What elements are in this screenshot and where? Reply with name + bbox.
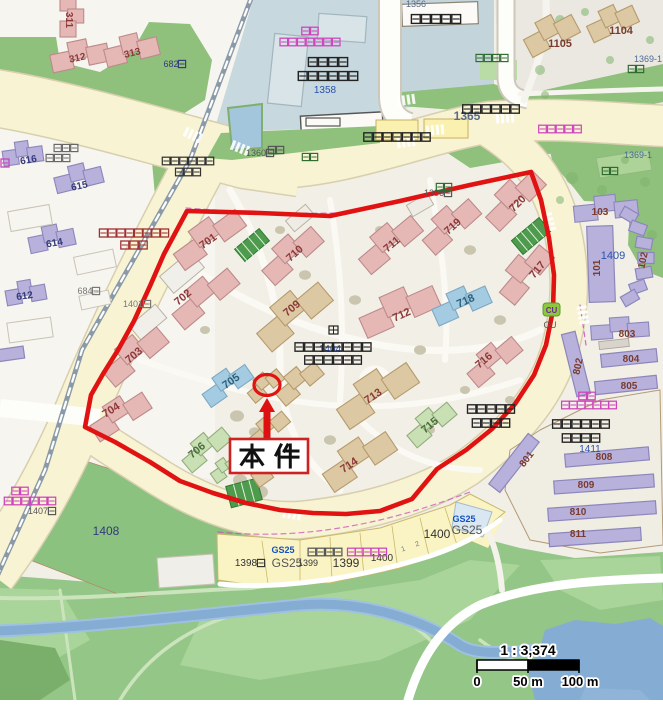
svg-text:682: 682: [163, 59, 178, 69]
svg-text:1399: 1399: [298, 558, 318, 568]
svg-text:100 m: 100 m: [562, 674, 599, 689]
svg-text:GS25: GS25: [271, 545, 294, 555]
svg-text:1400: 1400: [371, 553, 394, 564]
svg-text:0: 0: [473, 674, 480, 689]
svg-text:1369-1: 1369-1: [634, 54, 662, 64]
svg-text:103: 103: [592, 207, 609, 218]
svg-text:1409: 1409: [601, 250, 625, 262]
svg-text:1360: 1360: [246, 148, 266, 158]
svg-text:1358: 1358: [314, 85, 337, 96]
svg-text:1365: 1365: [454, 109, 481, 123]
svg-text:805: 805: [621, 381, 638, 392]
svg-text:1400: 1400: [424, 527, 451, 541]
svg-text:1401: 1401: [123, 299, 143, 309]
svg-text:1407: 1407: [28, 506, 48, 516]
svg-text:1399: 1399: [333, 556, 360, 570]
svg-text:809: 809: [578, 480, 595, 491]
svg-text:1369-1: 1369-1: [624, 150, 652, 160]
svg-text:CU: CU: [546, 306, 558, 315]
svg-text:101: 101: [592, 259, 603, 276]
svg-text:GS25: GS25: [452, 523, 483, 537]
svg-text:803: 803: [619, 329, 636, 340]
svg-text:311: 311: [63, 12, 74, 29]
svg-text:810: 810: [570, 507, 587, 518]
svg-text:811: 811: [570, 529, 587, 540]
svg-text:1104: 1104: [609, 25, 634, 37]
svg-text:808: 808: [596, 452, 613, 463]
svg-text:50 m: 50 m: [513, 674, 543, 689]
svg-text:1356: 1356: [406, 0, 426, 9]
svg-text:1408: 1408: [93, 524, 120, 538]
svg-text:CU: CU: [544, 320, 557, 330]
svg-text:684: 684: [77, 286, 92, 296]
svg-text:1105: 1105: [548, 38, 572, 50]
svg-text:1398: 1398: [235, 558, 258, 569]
svg-text:804: 804: [623, 354, 640, 365]
svg-text:1396: 1396: [424, 188, 444, 198]
svg-text:1 : 3,374: 1 : 3,374: [500, 642, 555, 658]
